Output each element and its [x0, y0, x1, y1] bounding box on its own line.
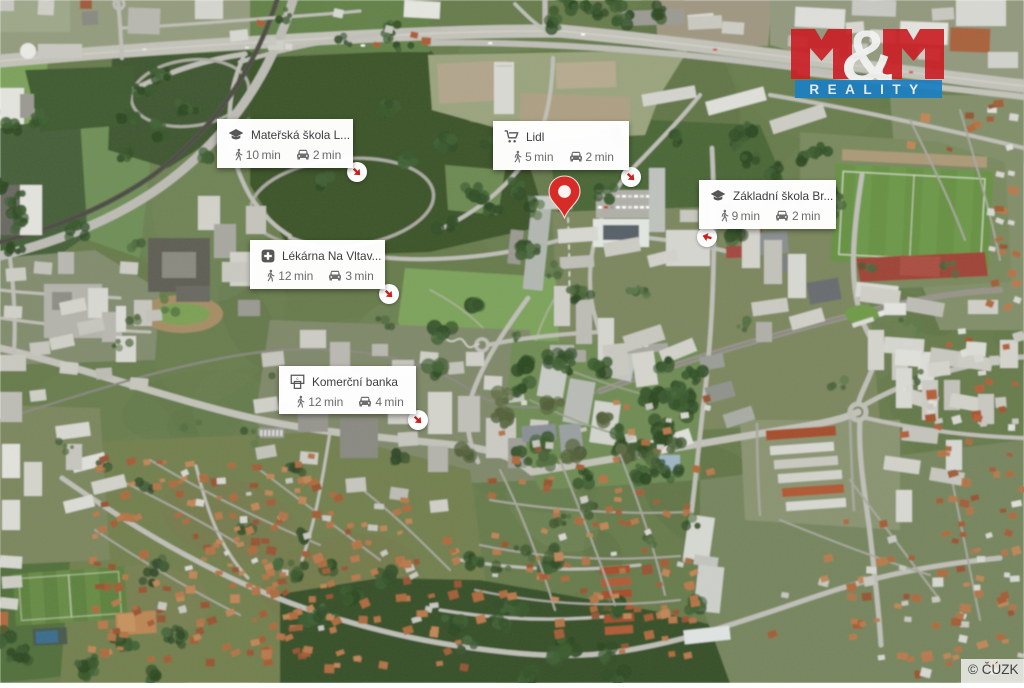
- svg-text:REALITY: REALITY: [809, 82, 926, 97]
- svg-text:c: c: [296, 376, 299, 381]
